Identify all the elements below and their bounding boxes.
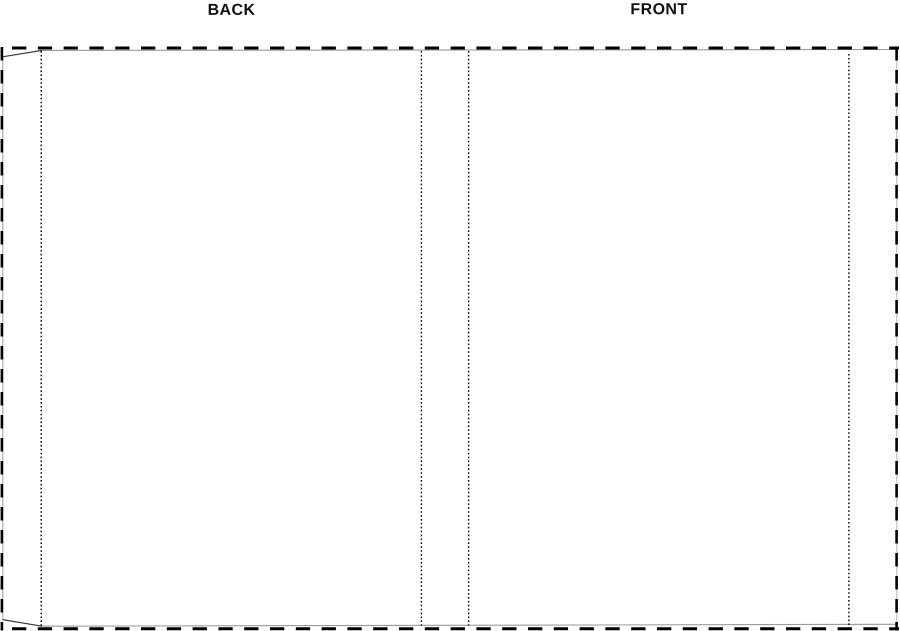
svg-text:BACK: BACK [208, 2, 256, 19]
svg-text:FRONT: FRONT [630, 1, 687, 18]
